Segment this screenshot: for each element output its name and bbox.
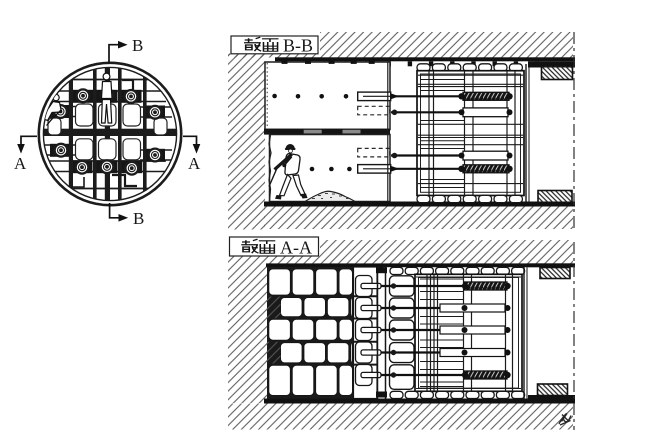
- svg-text:B: B: [132, 36, 143, 55]
- svg-text:B-B: B-B: [283, 35, 313, 55]
- svg-text:A: A: [188, 154, 201, 173]
- svg-text:A-A: A-A: [280, 238, 312, 258]
- svg-text:A: A: [14, 154, 27, 173]
- svg-text:B: B: [133, 209, 144, 228]
